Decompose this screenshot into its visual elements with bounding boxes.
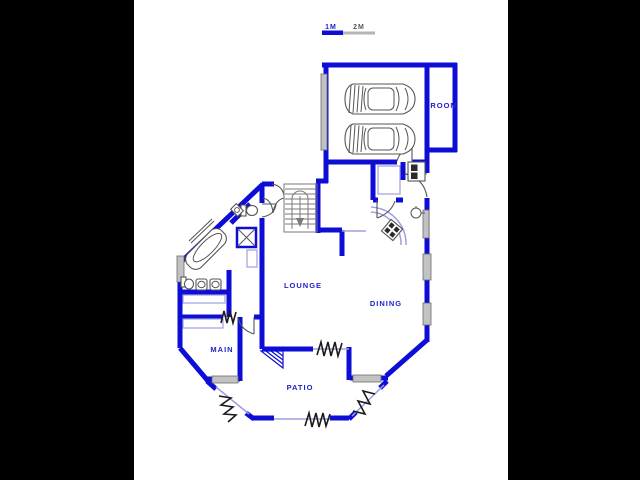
floorplan-svg: 1M 2M — [0, 0, 640, 480]
dining-south-window — [353, 375, 381, 382]
garage-door — [321, 74, 327, 150]
kitchen-counter-window — [423, 210, 429, 238]
oven-icon — [408, 162, 425, 181]
pantry-shelf — [378, 166, 400, 194]
vanity-cabinet — [183, 295, 225, 303]
main-label: MAIN — [210, 345, 233, 354]
built-in-cupboard — [183, 319, 223, 328]
patio-label: PATIO — [287, 383, 314, 392]
main-bedroom-window — [212, 376, 238, 383]
dining-label: DINING — [370, 299, 402, 308]
floorplan-image: 1M 2M — [0, 0, 640, 480]
dining-window-lower — [423, 303, 431, 325]
scale-bar-2m-segment — [343, 32, 375, 35]
scale-1m-label: 1M — [325, 24, 337, 31]
room-label: ROOM — [430, 101, 457, 110]
car-icon — [345, 84, 415, 114]
lounge-label: LOUNGE — [284, 281, 322, 290]
scale-bar-1m-segment — [322, 31, 343, 36]
dining-window-upper — [423, 254, 431, 280]
car-icon — [345, 124, 415, 154]
scale-2m-label: 2M — [353, 24, 365, 31]
linen-cupboard — [247, 250, 257, 267]
